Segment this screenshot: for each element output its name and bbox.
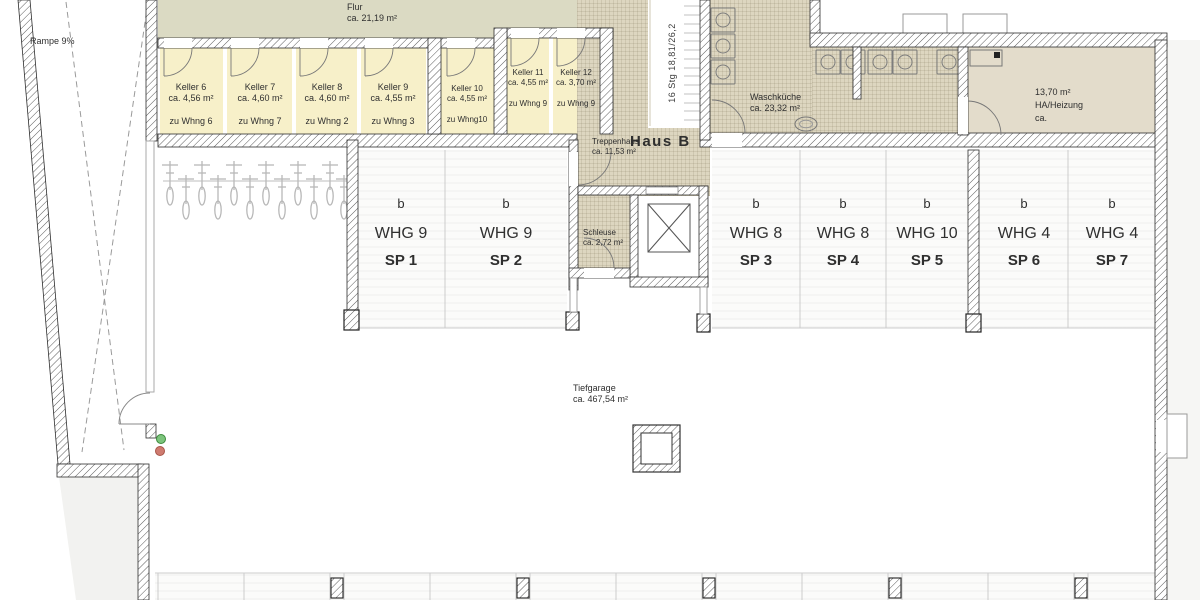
keller-7-label: Keller 7 ca. 4,60 m² zu Whng 7: [225, 82, 295, 127]
room-name: Keller 8: [292, 82, 362, 93]
room-assign: zu Whng 9: [551, 99, 601, 109]
keller-12-label: Keller 12 ca. 3,70 m² zu Whng 9: [551, 68, 601, 109]
ramp-slope-lines: [66, 2, 148, 452]
wall: [138, 464, 149, 600]
room-area: ca. 4,55 m²: [438, 94, 496, 104]
spot-number: SP 6: [980, 252, 1068, 269]
keller-8-label: Keller 8 ca. 4,60 m² zu Whng 2: [292, 82, 362, 127]
room-area: ca. 2,72 m²: [583, 238, 623, 248]
schleuse-label: Schleuse ca. 2,72 m²: [583, 228, 623, 248]
spot-marker: b: [445, 196, 567, 211]
spot-number: SP 5: [886, 252, 968, 269]
spot-marker: b: [1068, 196, 1156, 211]
stair-note: 16 Stg 18,81/26,2: [667, 0, 677, 128]
room-area: ca. 4,55 m²: [504, 78, 552, 88]
exterior-ground: [59, 477, 138, 600]
room-area: 13,70 m²: [1035, 86, 1083, 99]
column: [697, 314, 710, 332]
stair-treads: [684, 6, 700, 120]
spot-marker: b: [357, 196, 445, 211]
room-name: Keller 12: [551, 68, 601, 78]
column: [966, 314, 981, 332]
room-area: ca. 23,32 m²: [750, 103, 801, 114]
column: [889, 578, 901, 598]
spot-number: SP 1: [357, 252, 445, 269]
room-name: Waschküche: [750, 92, 801, 103]
spot-unit: WHG 4: [980, 225, 1068, 243]
wall: [630, 277, 708, 287]
spot-number: SP 2: [445, 252, 567, 269]
room-area: ca. 4,60 m²: [225, 93, 295, 104]
keller-10-label: Keller 10 ca. 4,55 m² zu Whng10: [438, 84, 496, 125]
wall: [968, 150, 979, 314]
sink-icon: [795, 117, 817, 131]
wall: [853, 47, 861, 99]
bicycle-front-icon: [322, 161, 338, 205]
wall-niche: [1167, 414, 1187, 458]
wall: [158, 134, 577, 147]
bicycle-front-icon: [226, 161, 242, 205]
spot-marker: b: [886, 196, 968, 211]
room-name: Keller 7: [225, 82, 295, 93]
room-area: ca. 467,54 m²: [573, 394, 628, 405]
washing-machine-icon: [711, 8, 735, 32]
treppenhaus-label: Treppenhaus ca. 11,53 m²: [592, 137, 639, 157]
column: [703, 578, 715, 598]
ramp-label: Rampe 9%: [30, 36, 75, 47]
washing-machine-icon: [816, 50, 840, 74]
keller-11-label: Keller 11 ca. 4,55 m² zu Whng 9: [504, 68, 552, 109]
wall: [700, 0, 710, 140]
washing-machine-icon: [711, 60, 735, 84]
room-assign: zu Whng10: [438, 115, 496, 125]
ha-heizung-label: 13,70 m² HA/Heizung ca.: [1035, 86, 1083, 125]
spot-unit: WHG 9: [445, 225, 567, 243]
washing-machine-icon: [893, 50, 917, 74]
room-assign: zu Whng 2: [292, 116, 362, 127]
room-assign: zu Whng 7: [225, 116, 295, 127]
room-name: Tiefgarage: [573, 383, 628, 394]
column: [517, 578, 529, 598]
room-area: ca. 4,60 m²: [292, 93, 362, 104]
keller-9-label: Keller 9 ca. 4,55 m² zu Whng 3: [358, 82, 428, 127]
spot-unit: WHG 8: [800, 225, 886, 243]
spot-number: SP 3: [712, 252, 800, 269]
column: [331, 578, 343, 598]
room-name: Keller 6: [156, 82, 226, 93]
room-assign: zu Whng 9: [504, 99, 552, 109]
wall: [1155, 40, 1167, 600]
column: [566, 312, 579, 330]
garage-door-icon: [146, 141, 154, 392]
spot-marker: b: [800, 196, 886, 211]
spot-unit: WHG 9: [357, 225, 445, 243]
washing-machine-icon: [868, 50, 892, 74]
room-name: Schleuse: [583, 228, 623, 238]
flur-label: Flur ca. 21,19 m²: [347, 2, 397, 24]
parking-spot-4: b WHG 8 SP 4: [800, 196, 886, 269]
wall: [630, 195, 638, 277]
tiefgarage-label: Tiefgarage ca. 467,54 m²: [573, 383, 628, 405]
parking-spot-5: b WHG 10 SP 5: [886, 196, 968, 269]
room-assign: zu Whng 3: [358, 116, 428, 127]
spot-number: SP 7: [1068, 252, 1156, 269]
wall: [810, 33, 1167, 47]
parking-spot-1: b WHG 9 SP 1: [357, 196, 445, 269]
spot-marker: b: [980, 196, 1068, 211]
room-name: Flur: [347, 2, 397, 13]
wall: [700, 133, 1165, 147]
room-area: ca. 4,55 m²: [358, 93, 428, 104]
room-name: Keller 11: [504, 68, 552, 78]
house-label: Haus B: [630, 133, 691, 150]
wall: [578, 186, 708, 195]
floorplan-canvas: Rampe 9% Flur ca. 21,19 m² Keller 6 ca. …: [0, 0, 1200, 600]
column: [344, 310, 359, 330]
room-name: HA/Heizung: [1035, 99, 1083, 112]
spot-unit: WHG 10: [886, 225, 968, 243]
elevator-shaft-icon: [646, 187, 690, 252]
spot-number: SP 4: [800, 252, 886, 269]
spot-marker: b: [712, 196, 800, 211]
parking-spot-3: b WHG 8 SP 3: [712, 196, 800, 269]
room-area: ca. 11,53 m²: [592, 147, 639, 157]
parking-spot-2: b WHG 9 SP 2: [445, 196, 567, 269]
outer-wall-slanted: [18, 0, 70, 464]
entry-door: [119, 393, 150, 424]
waschkueche-label: Waschküche ca. 23,32 m²: [750, 92, 801, 114]
washing-machine-icon: [937, 50, 961, 74]
column: [1075, 578, 1087, 598]
spot-unit: WHG 4: [1068, 225, 1156, 243]
center-column: [633, 425, 680, 472]
heating-unit-icon: [970, 50, 1002, 66]
door-hinge-block: [146, 424, 156, 438]
room-assign: zu Whng 6: [156, 116, 226, 127]
room-area: ca. 4,56 m²: [156, 93, 226, 104]
parking-spot-6: b WHG 4 SP 6: [980, 196, 1068, 269]
room-name: Treppenhaus: [592, 137, 639, 147]
wall: [600, 28, 613, 134]
bicycle-front-icon: [290, 161, 306, 205]
spot-unit: WHG 8: [712, 225, 800, 243]
bicycle-front-icon: [162, 161, 178, 205]
parking-spot-7: b WHG 4 SP 7: [1068, 196, 1156, 269]
bike-rack: [162, 161, 352, 219]
room-name: Keller 10: [438, 84, 496, 94]
room-area: ca. 3,70 m²: [551, 78, 601, 88]
room-area-prefix: ca.: [1035, 112, 1083, 125]
traffic-light-icon: [156, 435, 166, 456]
bicycle-front-icon: [258, 161, 274, 205]
washing-machine-icon: [711, 34, 735, 58]
bicycle-front-icon: [194, 161, 210, 205]
room-name: Keller 9: [358, 82, 428, 93]
wall: [699, 186, 708, 287]
room-area: ca. 21,19 m²: [347, 13, 397, 24]
wall: [57, 464, 141, 477]
keller-6-label: Keller 6 ca. 4,56 m² zu Whng 6: [156, 82, 226, 127]
